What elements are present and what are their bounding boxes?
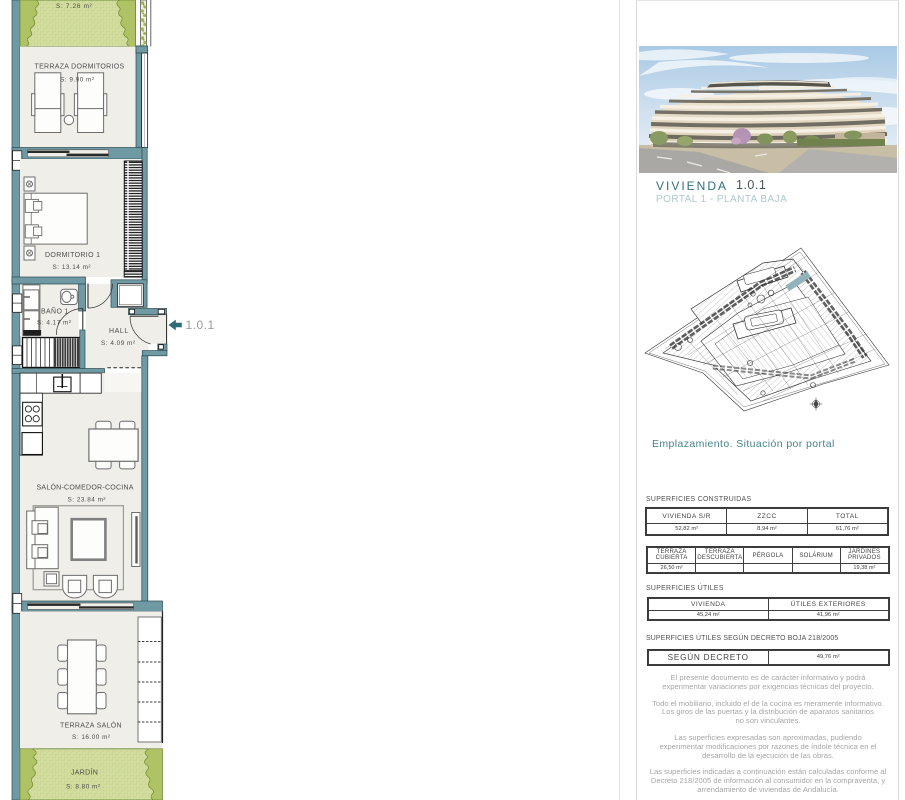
svg-text:TERRAZA DORMITORIOS: TERRAZA DORMITORIOS bbox=[35, 64, 125, 71]
svg-text:S: 16.00 m²: S: 16.00 m² bbox=[72, 734, 111, 741]
svg-text:DORMITORIO 1: DORMITORIO 1 bbox=[45, 252, 100, 259]
svg-text:SALÓN-COMEDOR-COCINA: SALÓN-COMEDOR-COCINA bbox=[37, 483, 134, 492]
svg-text:JARDÍN: JARDÍN bbox=[71, 768, 98, 777]
svg-text:1.0.1: 1.0.1 bbox=[186, 318, 215, 332]
svg-text:S: 7.26 m²: S: 7.26 m² bbox=[56, 3, 92, 10]
svg-text:BAÑO 1: BAÑO 1 bbox=[41, 307, 69, 316]
svg-text:S: 13.14 m²: S: 13.14 m² bbox=[53, 264, 92, 271]
svg-text:S: 4.17 m²: S: 4.17 m² bbox=[37, 320, 71, 327]
svg-text:S: 8.80 m²: S: 8.80 m² bbox=[66, 783, 100, 790]
svg-text:TERRAZA SALÓN: TERRAZA SALÓN bbox=[60, 720, 122, 729]
svg-text:S: 9.90 m²: S: 9.90 m² bbox=[60, 77, 94, 84]
svg-text:S: 23.84 m²: S: 23.84 m² bbox=[68, 496, 107, 503]
svg-text:S: 4.09 m²: S: 4.09 m² bbox=[101, 340, 135, 347]
svg-text:HALL: HALL bbox=[109, 328, 129, 335]
